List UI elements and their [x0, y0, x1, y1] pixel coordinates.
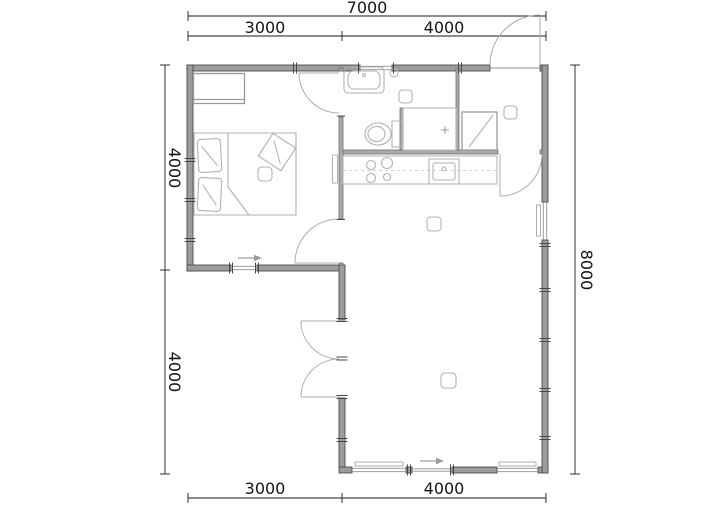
closet-diagonal — [469, 115, 493, 147]
french-doors — [301, 321, 339, 397]
entry-direction-arrow-icon — [420, 458, 444, 464]
dim-label-top-right: 4000 — [424, 18, 465, 37]
door-swing-arc — [490, 15, 540, 65]
wall-segment — [339, 467, 352, 473]
dim-label-bottom-right: 4000 — [424, 479, 465, 498]
bedroom-door — [295, 219, 339, 263]
bathroom-fixtures — [344, 67, 517, 150]
kitchen-sink-icon — [429, 159, 459, 184]
wall-segment — [257, 265, 345, 271]
shower-icon — [403, 108, 456, 150]
cushion-crease — [273, 152, 285, 164]
toilet-bowl-inner — [368, 127, 385, 142]
sink-tap — [442, 167, 446, 171]
interior-walls — [339, 68, 542, 265]
dim-label-right-total: 8000 — [577, 250, 596, 291]
wall-segment — [187, 265, 231, 271]
wall-segment — [542, 65, 548, 202]
partition-segment — [339, 68, 343, 71]
door-swing-arc — [299, 73, 339, 113]
cushion-icon — [258, 133, 295, 170]
dim-label-top-left: 3000 — [245, 18, 286, 37]
pillow-icon — [197, 177, 222, 211]
floor-drain-icon — [441, 373, 456, 388]
burner — [384, 174, 391, 181]
floor-plan-canvas: 7000 3000 4000 4000 4000 8000 3000 4000 — [0, 0, 713, 519]
door-swing-arc — [301, 359, 339, 397]
radiator-icon — [333, 155, 338, 183]
partition-segment — [339, 117, 343, 219]
wall-segment — [406, 467, 412, 473]
arrow-head — [436, 458, 444, 464]
closet-unit-icon — [462, 112, 497, 150]
toilet-icon — [365, 121, 402, 147]
dim-label-left-upper: 4000 — [165, 148, 184, 189]
burner — [367, 174, 376, 183]
wall-segment — [542, 240, 548, 473]
door-swing-arc — [295, 219, 339, 263]
wall-segment — [339, 398, 345, 467]
floor-drain-icon — [504, 106, 517, 119]
bedroom-furniture — [194, 74, 338, 216]
basin-tap — [363, 74, 366, 77]
partition-segment — [540, 150, 542, 154]
burner — [382, 158, 393, 169]
wall-segment — [187, 65, 193, 271]
pillow-crease — [201, 185, 217, 206]
shower-tray — [403, 108, 456, 150]
pillow-icon — [197, 138, 222, 172]
dim-label-left-lower: 4000 — [165, 352, 184, 393]
double-bed-icon — [194, 133, 296, 215]
entry-direction-arrow-icon — [238, 255, 262, 261]
hall-door — [500, 154, 542, 196]
dim-label-bottom-left: 3000 — [245, 479, 286, 498]
window-sill — [355, 462, 403, 466]
cushion-crease — [269, 140, 281, 152]
door-swing-arc — [301, 321, 339, 359]
kitchen-fixtures — [343, 156, 497, 184]
floor-plan-page: 7000 3000 4000 4000 4000 8000 3000 4000 — [0, 0, 713, 519]
blanket-fold — [228, 133, 249, 215]
doors — [295, 15, 542, 397]
partition-segment — [339, 263, 343, 265]
wall-segment — [187, 65, 360, 71]
door-swing-arc — [500, 154, 542, 196]
living-room-marks — [427, 217, 456, 388]
window-sill — [499, 462, 536, 466]
wall-segment — [452, 467, 497, 473]
stove-burners-icon — [367, 158, 393, 183]
window-sill — [537, 205, 541, 236]
bathroom-door — [299, 73, 339, 113]
stool-icon — [258, 167, 272, 181]
closet-outline — [462, 112, 497, 150]
pillow-crease — [202, 146, 218, 167]
burner — [367, 161, 376, 170]
arrow-head — [254, 255, 262, 261]
wall-segment — [339, 265, 345, 320]
wall-segment — [392, 65, 490, 71]
dim-label-top-total: 7000 — [347, 0, 388, 17]
exterior-walls — [187, 65, 548, 473]
wall-panel-joints — [185, 63, 551, 476]
floor-drain-icon — [427, 217, 441, 231]
entrance-door — [490, 15, 540, 65]
floor-drain-icon — [399, 90, 412, 103]
kitchen-counter — [343, 156, 497, 184]
dimension-annotations: 7000 3000 4000 4000 4000 8000 3000 4000 — [160, 0, 596, 503]
